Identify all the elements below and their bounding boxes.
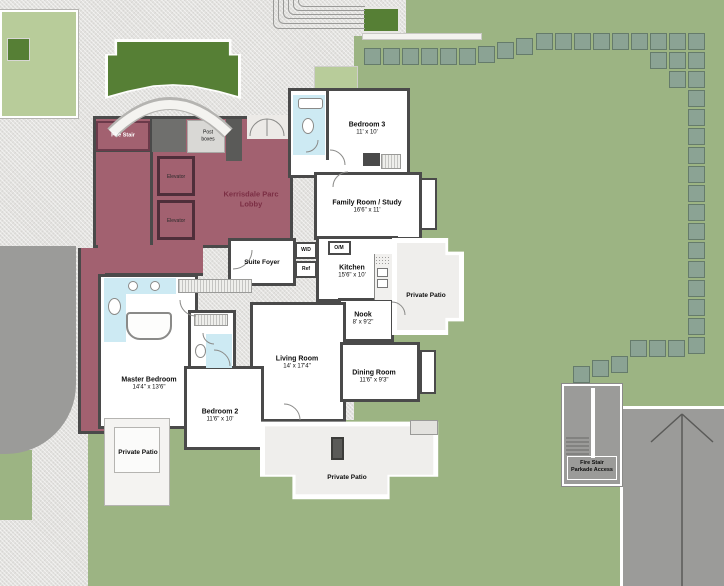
hedge-shrub bbox=[669, 71, 686, 88]
sidewalk-square-patio bbox=[410, 420, 438, 435]
parkade-label-line2: Parkade Access bbox=[571, 467, 613, 473]
master-tub bbox=[126, 312, 172, 340]
fire-stair-label: Fire Stair bbox=[111, 132, 135, 139]
garden-bed-topleft bbox=[0, 10, 78, 118]
living-room-label: Living Room14' x 17'4" bbox=[276, 355, 318, 372]
master-toilet bbox=[108, 298, 121, 315]
patio-right bbox=[392, 238, 464, 335]
master-bedroom-label: Master Bedroom14'4" x 13'6" bbox=[121, 376, 176, 393]
kitchen-label: Kitchen15'6" x 10' bbox=[338, 264, 365, 281]
hedge-shrub bbox=[688, 166, 705, 183]
lobby-title-line2: Lobby bbox=[240, 199, 263, 208]
bath2-floor bbox=[206, 334, 232, 368]
lobby-title: Kerrisdale Parc Lobby bbox=[223, 189, 278, 209]
post-boxes-line2: boxes bbox=[201, 136, 214, 142]
hedge-shrub bbox=[668, 340, 685, 357]
hedge-shrub bbox=[688, 33, 705, 50]
hedge-shrub bbox=[688, 318, 705, 335]
hedge-shrub bbox=[650, 33, 667, 50]
hedge-shrub bbox=[688, 280, 705, 297]
bedroom3-label: Bedroom 311' x 10' bbox=[349, 121, 386, 138]
bath3-toilet bbox=[302, 118, 314, 134]
master-sink-2 bbox=[150, 281, 160, 291]
elevator-1-label: Elevator bbox=[167, 174, 185, 181]
parkade-label: Fire Stair Parkade Access bbox=[571, 460, 613, 474]
patio-bottom-left-label: Private Patio bbox=[118, 449, 157, 457]
wall-bath3-divider bbox=[326, 90, 329, 160]
floor-plan-canvas: Fire Stair Post boxes Elevator Elevator … bbox=[0, 0, 724, 586]
family-closet bbox=[381, 154, 401, 169]
hedge-shrub bbox=[612, 33, 629, 50]
hedge-shrub bbox=[611, 356, 628, 373]
kitchen-counter-dots bbox=[375, 256, 389, 265]
hedge-shrub bbox=[593, 33, 610, 50]
stove-box-2 bbox=[377, 279, 388, 288]
hedge-shrub bbox=[459, 48, 476, 65]
elevator-2-label: Elevator bbox=[167, 218, 185, 225]
lawn-left-strip bbox=[0, 450, 32, 520]
hedge-shrub bbox=[592, 360, 609, 377]
stove-box-1 bbox=[377, 268, 388, 277]
bay-window-family bbox=[420, 178, 437, 230]
hedge-shrub bbox=[421, 48, 438, 65]
hedge-shrub bbox=[402, 48, 419, 65]
hedge-shrub bbox=[669, 33, 686, 50]
bedroom2-closet bbox=[194, 314, 228, 326]
hedge-shrub bbox=[688, 90, 705, 107]
lobby-entry-recess bbox=[247, 115, 289, 139]
patio-bottom-left bbox=[104, 418, 170, 506]
hedge-shrub bbox=[688, 185, 705, 202]
ref-label: Ref bbox=[302, 266, 310, 273]
hedge-shrub bbox=[688, 147, 705, 164]
hedge-shrub bbox=[478, 46, 495, 63]
entry-planter-outline bbox=[105, 39, 241, 99]
hedge-shrub bbox=[688, 128, 705, 145]
planter-box-small-left bbox=[7, 38, 30, 61]
bath2-toilet bbox=[195, 344, 206, 358]
post-boxes-line1: Post bbox=[203, 130, 213, 136]
road-left bbox=[0, 246, 76, 454]
lobby-title-line1: Kerrisdale Parc bbox=[223, 189, 278, 198]
hedge-shrub bbox=[650, 52, 667, 69]
parkade-label-line1: Fire Stair bbox=[580, 460, 604, 466]
bay-window-dining bbox=[420, 350, 436, 394]
hedge-shrub bbox=[573, 366, 590, 383]
hedge-shrub bbox=[630, 340, 647, 357]
bath3-sink bbox=[298, 98, 323, 109]
patio-right-inner bbox=[397, 243, 459, 330]
wd-label: W/D bbox=[301, 247, 311, 254]
path-topright bbox=[362, 33, 482, 40]
patio-column bbox=[331, 437, 344, 460]
om-label: O/M bbox=[334, 245, 343, 252]
hedge-shrub bbox=[555, 33, 572, 50]
parkade-gap bbox=[591, 388, 595, 458]
patio-bottom-center-label: Private Patio bbox=[327, 474, 366, 482]
suite-foyer-label: Suite Foyer bbox=[244, 259, 279, 267]
hedge-shrub bbox=[688, 71, 705, 88]
lobby-extension-south bbox=[95, 245, 203, 276]
hedge-shrub bbox=[688, 299, 705, 316]
hedge-shrub bbox=[536, 33, 553, 50]
family-closet-wall bbox=[363, 153, 380, 166]
master-closet bbox=[178, 279, 252, 293]
driveway-bottom-right bbox=[620, 406, 724, 586]
hedge-shrub bbox=[688, 52, 705, 69]
patio-right-label: Private Patio bbox=[406, 292, 445, 300]
planter-topright bbox=[362, 7, 400, 33]
hedge-shrub bbox=[688, 261, 705, 278]
hedge-shrub bbox=[631, 33, 648, 50]
master-bath-floor bbox=[104, 278, 176, 294]
nook-label: Nook8' x 9'2" bbox=[353, 311, 374, 328]
hedge-shrub bbox=[649, 340, 666, 357]
hedge-shrub bbox=[574, 33, 591, 50]
master-sink-1 bbox=[128, 281, 138, 291]
hedge-shrub bbox=[688, 204, 705, 221]
dining-room-label: Dining Room11'6" x 9'3" bbox=[352, 369, 396, 386]
lobby-dark-block bbox=[226, 119, 242, 161]
hedge-shrub bbox=[688, 242, 705, 259]
hedge-shrub bbox=[383, 48, 400, 65]
hedge-shrub bbox=[497, 42, 514, 59]
lobby-service-block bbox=[152, 119, 186, 152]
contour-line-6 bbox=[298, 0, 365, 7]
hedge-shrub bbox=[440, 48, 457, 65]
hedge-shrub bbox=[688, 223, 705, 240]
hedge-shrub bbox=[516, 38, 533, 55]
post-boxes-label: Post boxes bbox=[201, 130, 214, 143]
entry-planter bbox=[108, 42, 238, 96]
hedge-shrub bbox=[669, 52, 686, 69]
hedge-shrub bbox=[688, 337, 705, 354]
bedroom2-label: Bedroom 211'6" x 10' bbox=[202, 408, 239, 425]
hedge-shrub bbox=[688, 109, 705, 126]
hedge-shrub bbox=[364, 48, 381, 65]
family-room-label: Family Room / Study16'6" x 11' bbox=[332, 199, 401, 216]
